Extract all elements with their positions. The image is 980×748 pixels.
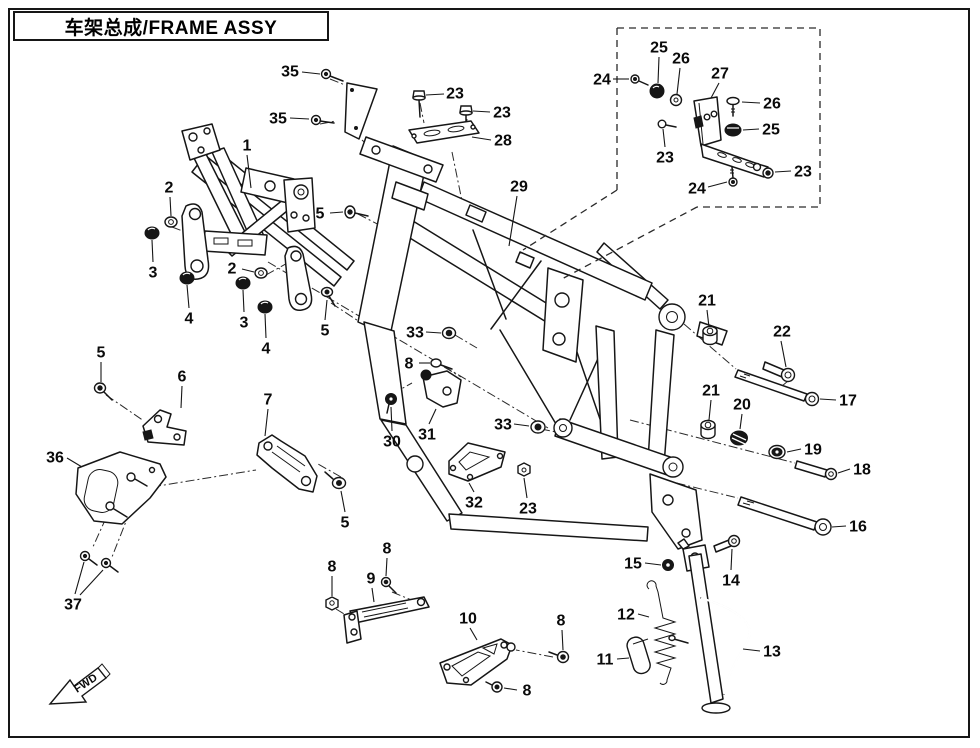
leader-line	[617, 658, 629, 659]
callout-9: 9	[367, 571, 376, 588]
callout-2: 2	[165, 180, 174, 197]
callout-27: 27	[711, 66, 729, 83]
grommet-3-b	[236, 277, 250, 289]
callout-11: 11	[597, 652, 614, 669]
washer-19	[769, 446, 785, 459]
callout-22: 22	[773, 324, 791, 341]
leader-line	[775, 171, 791, 172]
part-36-plate	[76, 452, 166, 524]
leader-line	[426, 332, 441, 333]
leader-line	[472, 137, 491, 140]
callout-3: 3	[149, 265, 158, 282]
bolt-5-b	[322, 288, 336, 307]
callout-6: 6	[178, 369, 187, 386]
grommet-4-b	[258, 301, 272, 313]
callout-1: 1	[243, 138, 252, 155]
leader-line	[740, 414, 742, 429]
bolt-8-e	[486, 682, 502, 692]
leader-line	[426, 94, 444, 95]
bolt-22	[763, 362, 795, 382]
bushing-21-a	[703, 327, 717, 345]
part-13-kickstand	[669, 539, 750, 713]
bushing-20	[731, 431, 748, 445]
screw-24-b	[729, 167, 737, 186]
leader-line	[514, 424, 529, 426]
leader-line	[562, 630, 563, 650]
bolt-18	[795, 461, 837, 480]
leader-line	[743, 129, 759, 130]
leader-line	[709, 400, 711, 420]
callout-17: 17	[839, 393, 857, 410]
screw-23-c	[658, 120, 676, 128]
callout-23: 23	[794, 164, 812, 181]
bolt-14	[714, 536, 740, 553]
callout-8: 8	[405, 356, 414, 373]
callout-37: 37	[64, 597, 82, 614]
leader-line	[181, 386, 182, 408]
leader-line	[832, 526, 846, 527]
leader-line	[838, 469, 850, 473]
callout-8: 8	[557, 613, 566, 630]
callout-4: 4	[185, 311, 194, 328]
leader-line	[372, 588, 374, 602]
callout-31: 31	[418, 427, 436, 444]
leader-line	[504, 688, 517, 690]
callout-12: 12	[617, 607, 635, 624]
callout-5: 5	[321, 323, 330, 340]
part-1-front-subframe	[182, 124, 354, 310]
part-6-bracket	[143, 410, 186, 445]
bushing-2-b	[255, 268, 267, 278]
grommet-3-a	[145, 227, 159, 239]
callout-29: 29	[510, 179, 528, 196]
callout-2: 2	[228, 261, 237, 278]
callout-33: 33	[494, 417, 512, 434]
screw-37-a	[81, 552, 98, 566]
washer-33-a	[443, 328, 456, 339]
fwd-arrow: FWD	[50, 664, 110, 704]
leader-line	[152, 240, 153, 262]
callout-16: 16	[849, 519, 867, 536]
leader-line	[677, 68, 680, 94]
callout-25: 25	[762, 122, 780, 139]
callout-32: 32	[465, 495, 483, 512]
callout-21: 21	[698, 293, 716, 310]
part-7-bracket	[257, 435, 317, 492]
callout-5: 5	[97, 345, 106, 362]
callout-8: 8	[383, 541, 392, 558]
callout-3: 3	[240, 315, 249, 332]
callout-23: 23	[656, 150, 674, 167]
leader-line	[80, 570, 103, 595]
leader-line	[743, 649, 760, 651]
callout-25: 25	[650, 40, 668, 57]
screw-37-b	[102, 559, 119, 573]
part-31-bracket	[421, 370, 461, 407]
callout-26: 26	[763, 96, 781, 113]
callout-8: 8	[328, 559, 337, 576]
leader-line	[302, 72, 320, 74]
leader-line	[524, 478, 527, 498]
callout-4: 4	[262, 341, 271, 358]
callout-24: 24	[593, 72, 611, 89]
callout-18: 18	[853, 462, 871, 479]
callout-36: 36	[46, 450, 64, 467]
leader-line	[170, 197, 171, 216]
leader-line	[290, 118, 309, 119]
bushing-21-b	[701, 421, 715, 439]
callout-23: 23	[446, 86, 464, 103]
callout-14: 14	[722, 573, 740, 590]
callout-23: 23	[519, 501, 537, 518]
leader-line	[429, 409, 436, 424]
leader-line	[645, 563, 661, 565]
nut-23-e	[518, 463, 530, 476]
grommet-25-a	[650, 84, 664, 98]
bolt-8-a	[431, 359, 452, 369]
callout-24: 24	[688, 181, 706, 198]
leader-line	[473, 111, 490, 112]
part-10-bracket	[440, 639, 515, 685]
callout-35: 35	[269, 111, 287, 128]
callout-26: 26	[672, 51, 690, 68]
callout-7: 7	[264, 392, 273, 409]
callout-10: 10	[459, 611, 477, 628]
callout-21: 21	[702, 383, 720, 400]
callout-5: 5	[341, 515, 350, 532]
washer-26-a	[671, 95, 682, 106]
leader-line	[341, 491, 345, 512]
part-35-screw-a	[322, 70, 344, 82]
callout-35: 35	[281, 64, 299, 81]
callout-5: 5	[316, 206, 325, 223]
callout-8: 8	[523, 683, 532, 700]
grommet-25-b	[725, 124, 741, 136]
leader-line	[265, 314, 266, 338]
bushing-2-a	[165, 217, 177, 227]
nut-8-b	[326, 597, 338, 610]
spring-12	[647, 581, 675, 685]
leader-line	[638, 614, 649, 617]
bolt-23-a	[413, 91, 425, 117]
page: 车架总成/FRAME ASSY	[0, 0, 980, 748]
leader-line	[742, 102, 760, 103]
part-32-bracket	[449, 443, 505, 481]
callout-13: 13	[763, 644, 781, 661]
leader-line	[67, 458, 82, 467]
bolt-5-d	[325, 472, 346, 489]
leader-line	[265, 409, 268, 436]
leader-line	[663, 129, 665, 147]
part-9-bracket	[344, 597, 429, 643]
bolt-16	[738, 497, 831, 535]
nut-23-d	[763, 168, 773, 178]
pin-11	[625, 635, 652, 675]
diagram-canvas: FWD 123423455353523232829242526272625232…	[0, 0, 980, 748]
nut-15	[663, 560, 674, 571]
leader-line	[330, 212, 343, 213]
leader-line	[711, 83, 719, 98]
leader-line	[187, 285, 189, 308]
leader-line	[469, 483, 474, 492]
leader-line	[820, 399, 836, 400]
leader-line	[731, 549, 732, 570]
part-28-bracket	[409, 121, 479, 143]
leader-line	[386, 558, 387, 576]
callout-layer: 1234234553535232328292425262726252323243…	[46, 40, 871, 700]
callout-28: 28	[494, 133, 512, 150]
leader-line	[708, 182, 727, 187]
bolt-5-c	[95, 383, 113, 400]
leader-line	[787, 449, 801, 452]
bolt-5-a	[345, 206, 368, 218]
bolt-8-c	[382, 578, 397, 594]
leader-line	[242, 269, 254, 272]
grommet-4-a	[180, 272, 194, 284]
leader-line	[781, 341, 786, 367]
callout-20: 20	[733, 397, 751, 414]
leader-line	[325, 300, 327, 320]
part-29-main-frame	[358, 137, 727, 549]
leader-line	[75, 562, 84, 594]
callout-15: 15	[624, 556, 642, 573]
vin-plate	[345, 83, 377, 139]
washer-33-b	[531, 421, 545, 433]
callout-19: 19	[804, 442, 822, 459]
callout-30: 30	[383, 434, 401, 451]
callout-33: 33	[406, 325, 424, 342]
leader-line	[243, 290, 244, 312]
bolt-26-b	[727, 98, 739, 117]
leader-line	[470, 628, 477, 640]
leader-line	[658, 57, 659, 83]
callout-23: 23	[493, 105, 511, 122]
screw-24-a	[631, 75, 648, 85]
